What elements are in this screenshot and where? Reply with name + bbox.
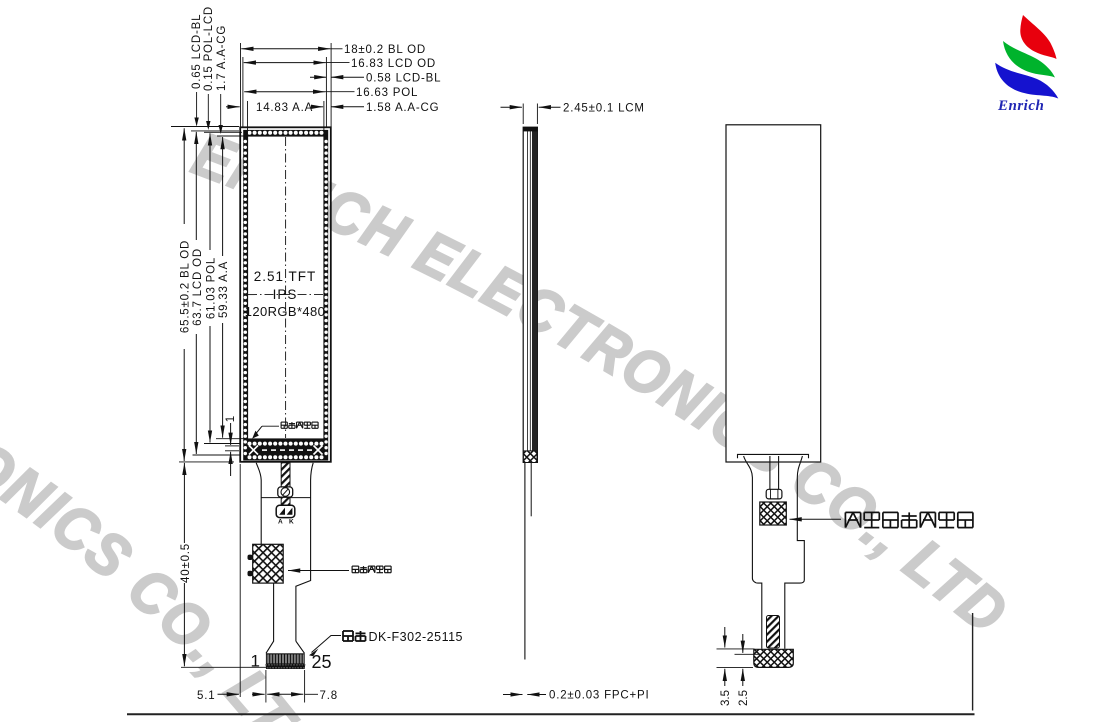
svg-text:16.83 LCD OD: 16.83 LCD OD: [351, 58, 436, 70]
svg-text:7.8: 7.8: [320, 690, 338, 702]
svg-text:63.7 LCD OD: 63.7 LCD OD: [192, 248, 204, 326]
svg-text:1.7 A.A-CG: 1.7 A.A-CG: [216, 25, 228, 91]
svg-text:0.15 POL-LCD: 0.15 POL-LCD: [203, 6, 215, 91]
svg-text:5.1: 5.1: [197, 690, 215, 702]
svg-text:65.5±0.2 BL OD: 65.5±0.2 BL OD: [180, 240, 192, 333]
svg-text:1.58 A.A-CG: 1.58 A.A-CG: [366, 102, 439, 114]
svg-text:0.2±0.03 FPC+PI: 0.2±0.03 FPC+PI: [549, 690, 649, 702]
svg-text:59.33 A.A: 59.33 A.A: [218, 261, 230, 318]
svg-text:61.03 POL: 61.03 POL: [206, 257, 218, 319]
svg-text:16.63 POL: 16.63 POL: [356, 87, 418, 99]
svg-text:2.51 TFT: 2.51 TFT: [254, 269, 317, 284]
svg-text:IPS: IPS: [273, 287, 298, 302]
svg-text:Enrich: Enrich: [997, 98, 1044, 114]
svg-text:0.58 LCD-BL: 0.58 LCD-BL: [366, 72, 441, 84]
svg-text:18±0.2 BL OD: 18±0.2 BL OD: [344, 44, 426, 56]
svg-text:K: K: [289, 519, 294, 526]
svg-text:2.5: 2.5: [738, 690, 750, 706]
svg-text:DK-F302-25115: DK-F302-25115: [369, 630, 464, 644]
svg-text:14.83 A.A: 14.83 A.A: [256, 102, 313, 114]
svg-text:2.45±0.1 LCM: 2.45±0.1 LCM: [563, 102, 645, 114]
svg-text:120RGB*480: 120RGB*480: [245, 304, 326, 319]
svg-text:0.65 LCD-BL: 0.65 LCD-BL: [191, 14, 203, 89]
svg-text:40±0.5: 40±0.5: [180, 543, 192, 583]
svg-text:25: 25: [312, 652, 332, 672]
svg-text:A: A: [278, 519, 283, 526]
svg-text:1: 1: [225, 416, 237, 422]
svg-text:3.5: 3.5: [720, 690, 732, 706]
